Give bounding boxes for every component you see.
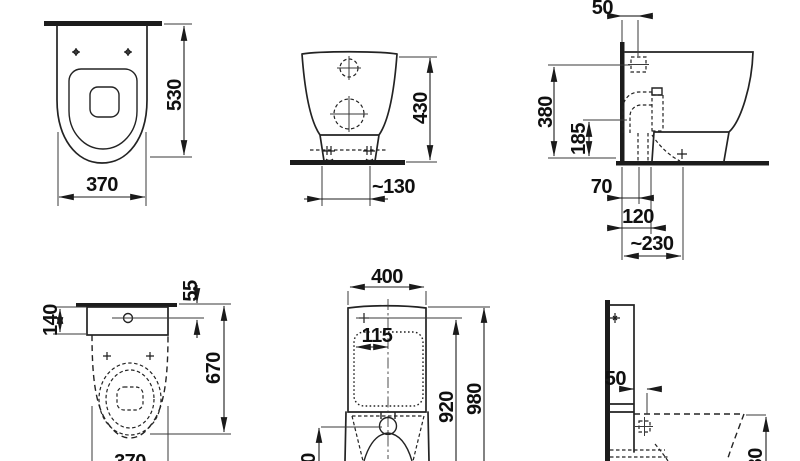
dim-label-370: 370 — [114, 451, 146, 461]
dim-label-430: 430 — [745, 448, 767, 461]
bowl-opening — [90, 87, 119, 117]
wc-profile-outline — [625, 52, 753, 161]
cistern-outline — [87, 307, 168, 335]
fixing-hole-marker — [103, 352, 154, 360]
technical-drawing-canvas: 530 370 430 ~130 — [0, 0, 800, 461]
dim-label-530: 530 — [164, 79, 186, 111]
floor-section-bar — [290, 160, 405, 165]
trap-hidden-lines — [610, 444, 670, 461]
dim-label-185: 185 — [568, 123, 590, 155]
opening-hidden-outline — [117, 387, 143, 410]
dim-920: 920 — [436, 320, 458, 461]
seat-hinge-detail — [635, 417, 653, 436]
water-supply-detail — [628, 57, 649, 72]
wall-section-bar — [44, 21, 162, 26]
dim-400: 400 — [348, 266, 426, 305]
seat-hidden-line — [634, 414, 744, 461]
dim-label-670: 670 — [203, 352, 225, 384]
dim-label-130: ~130 — [372, 176, 415, 198]
cistern-outline — [348, 306, 426, 412]
fixing-hole-marker — [72, 48, 132, 56]
dim-label-140: 140 — [40, 304, 62, 336]
seat-outline — [69, 69, 137, 149]
dim-430-seat-height: 430 — [745, 415, 767, 461]
dim-label-55: 55 — [180, 280, 202, 302]
center-marker — [677, 149, 687, 159]
dim-label-370: 370 — [86, 174, 118, 196]
dimension-drawing: 530 370 430 ~130 — [0, 0, 800, 461]
dim-130: ~130 — [304, 166, 415, 206]
dim-label-115: 115 — [362, 325, 393, 347]
dim-label-120: 120 — [622, 206, 654, 228]
dim-label-980: 980 — [464, 383, 486, 415]
view-combi-top: 140 55 670 370 — [40, 280, 231, 461]
view-wc-top: 530 370 — [44, 21, 192, 206]
dim-label-380: 380 — [535, 96, 557, 128]
dim-370: 370 — [58, 132, 146, 206]
rim-hidden-outline — [106, 370, 154, 428]
dim-label-70: 70 — [591, 176, 613, 198]
dim-label-230: ~230 — [630, 233, 673, 255]
view-wc-rear: 430 ~130 — [290, 52, 437, 206]
bowl-outline — [57, 26, 147, 163]
dim-label-50: 50 — [605, 368, 627, 390]
dim-120: 120 — [607, 206, 666, 228]
view-combi-front: 400 115 920 980 430 — [298, 266, 490, 461]
dim-230: ~230 — [624, 233, 681, 256]
trap-hidden-outline — [623, 88, 680, 161]
dim-980: 980 — [428, 307, 490, 461]
fixing-screw — [323, 146, 375, 161]
dim-670: 670 — [150, 306, 231, 434]
dim-label-430: 430 — [298, 453, 320, 461]
dim-430-seat-height: 430 — [298, 427, 382, 461]
floor-section-bar — [616, 161, 769, 166]
view-combi-side: 50 430 — [605, 300, 767, 461]
dim-label-920: 920 — [436, 391, 458, 423]
dim-140: 140 — [40, 304, 86, 336]
dim-label-430: 430 — [410, 92, 432, 124]
view-wc-side: 50 380 185 70 120 ~230 — [535, 0, 769, 260]
fixing-marker — [610, 313, 620, 323]
dim-430: 430 — [399, 57, 437, 162]
dim-55: 55 — [179, 280, 231, 338]
dim-530: 530 — [150, 24, 192, 157]
dim-label-400: 400 — [371, 266, 403, 288]
dim-185: 185 — [568, 120, 627, 156]
dim-115: 115 — [356, 325, 393, 347]
dim-label-50: 50 — [592, 0, 614, 19]
